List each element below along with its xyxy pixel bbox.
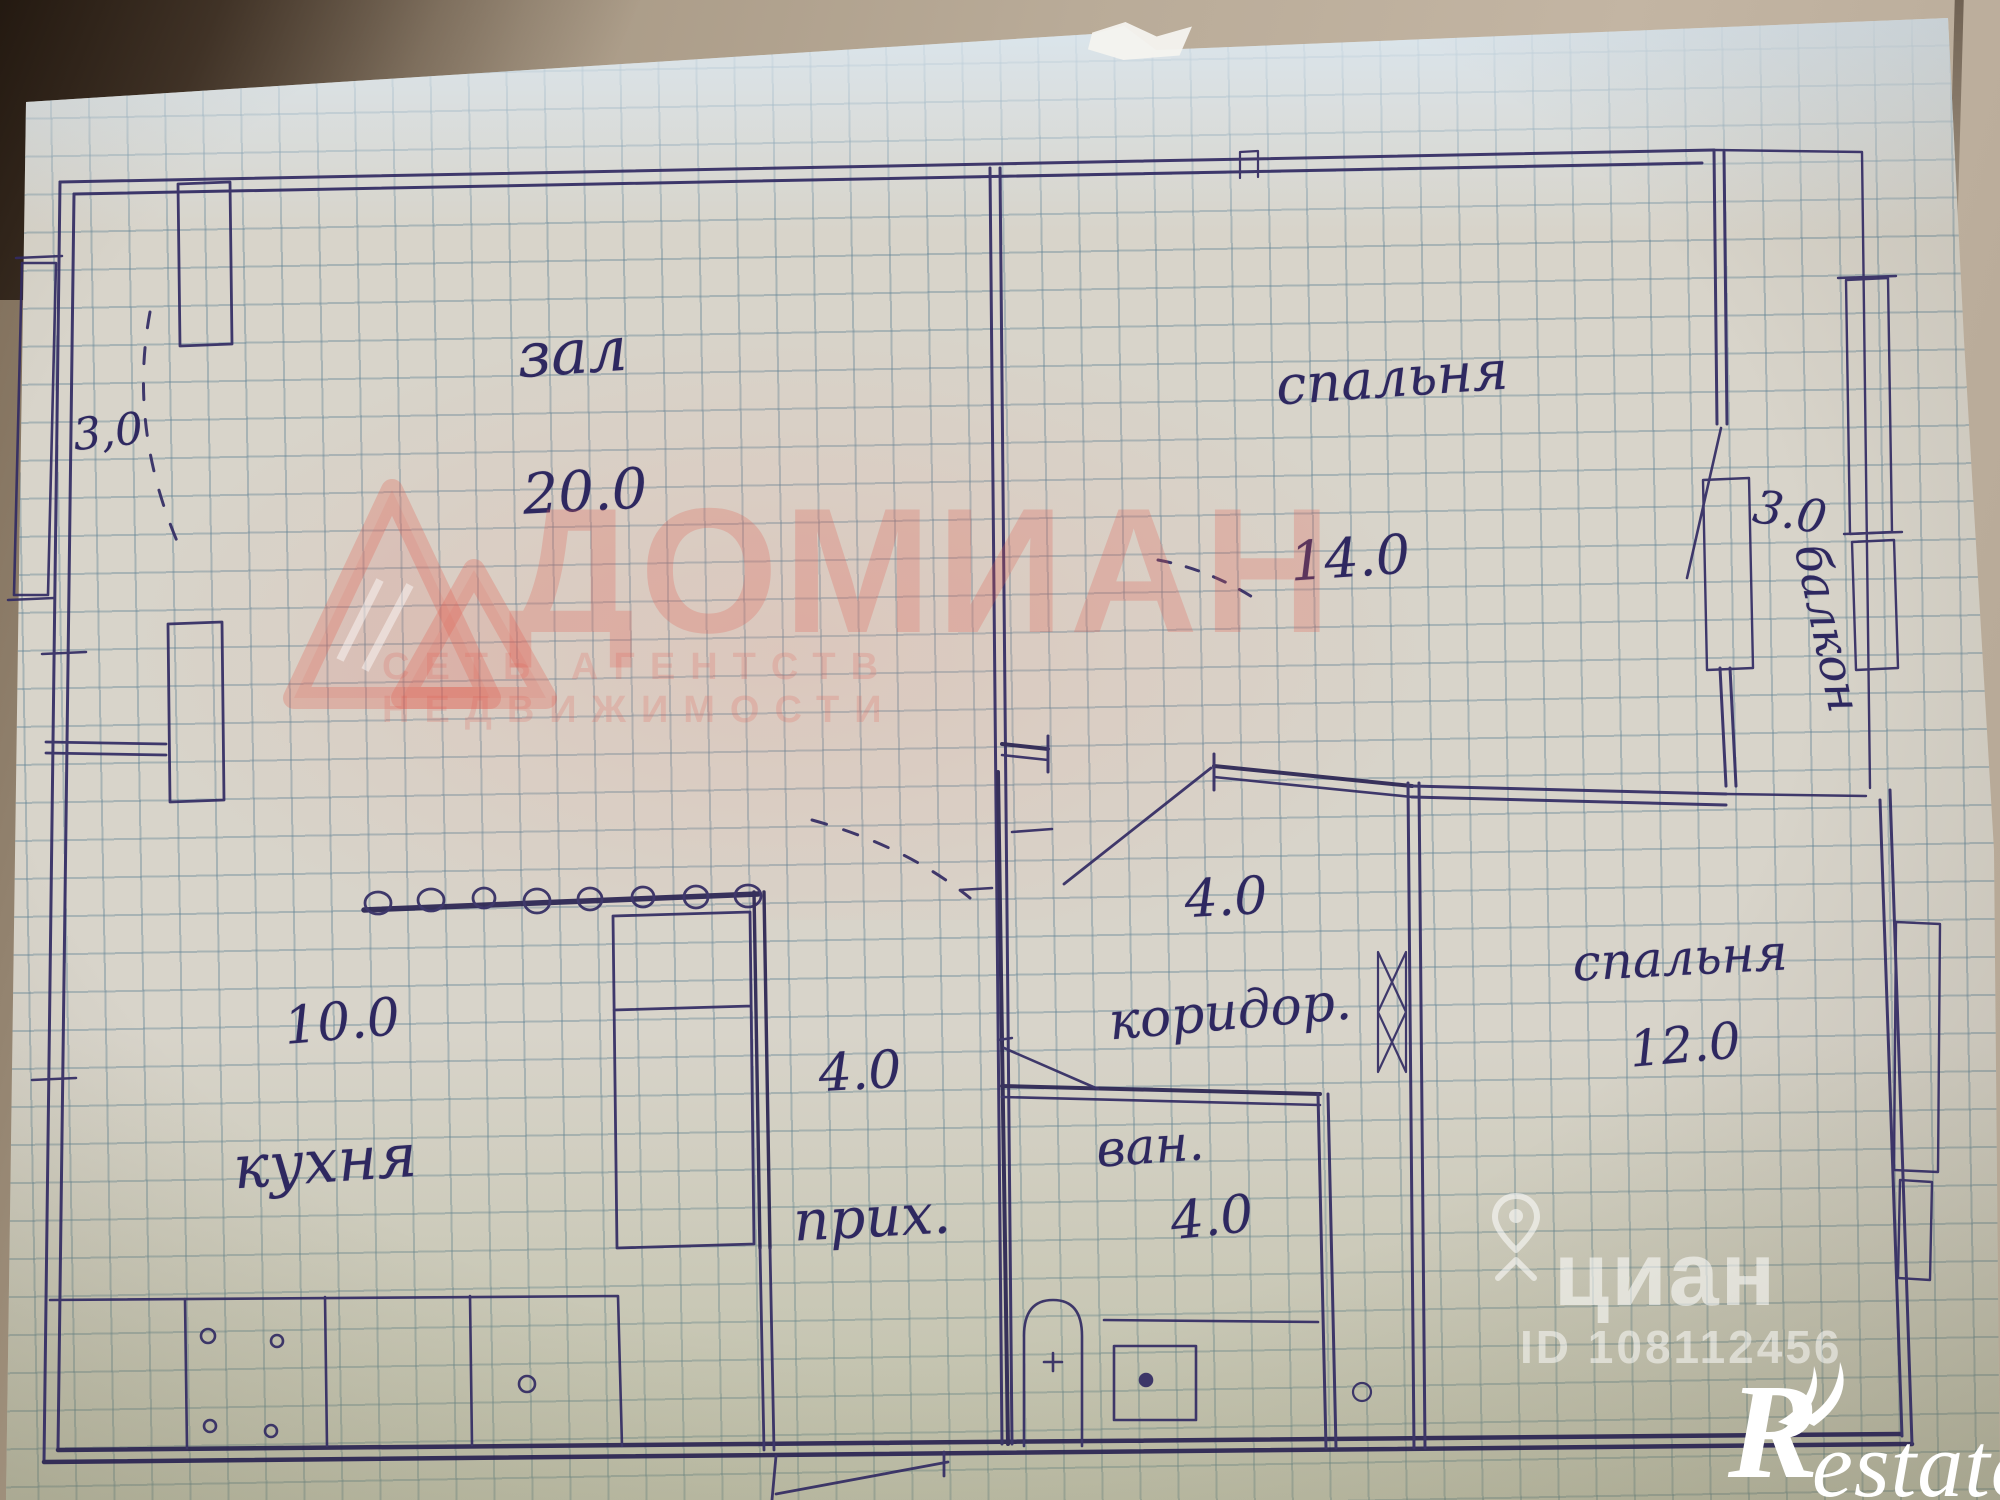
balcony-outer-wall (1714, 150, 1902, 788)
top-wall-tick (1240, 151, 1258, 178)
sink (1114, 1346, 1196, 1420)
bathroom-door-leaf (1004, 1048, 1098, 1089)
closet (613, 912, 754, 1248)
bathroom-fixtures (1024, 1300, 1318, 1446)
door-swing-arcs (143, 312, 1260, 898)
corridor-door-leaf (1064, 768, 1211, 884)
label-entry-name: прих. (792, 1181, 953, 1254)
wall-bedroom2-left (1353, 783, 1425, 1448)
label-bedroom-bottom-name: спальня (1571, 923, 1789, 992)
floorplan-photo: зал 20.0 спальня 14.0 3.0 балкон 3,0 10.… (0, 0, 2000, 1500)
label-kitchen-area: 10.0 (282, 987, 403, 1057)
outer-walls (44, 150, 1912, 1462)
label-corridor-area: 4.0 (1183, 866, 1269, 930)
label-entry-area: 4.0 (817, 1040, 903, 1104)
label-hall-area: 20.0 (521, 456, 649, 527)
wall-bedroom2-top (1412, 786, 1866, 805)
floorplan-drawing (0, 0, 2000, 1500)
door-knob-circle (1353, 1383, 1371, 1401)
entrance-door (772, 1452, 948, 1500)
walls-bathroom (998, 1038, 1336, 1448)
label-bedroom-top-area: 14.0 (1288, 522, 1412, 593)
label-bedroom-bottom-area: 12.0 (1627, 1011, 1743, 1078)
wall-central (990, 168, 1012, 1444)
toilet (1024, 1300, 1082, 1446)
kitchen-counter (50, 1296, 622, 1448)
wall-bedroom2-right (1880, 790, 1940, 1444)
label-bathroom-name: ван. (1094, 1113, 1206, 1178)
bedroom2-door-symbol (1378, 952, 1406, 1072)
label-balcony-left-area: 3,0 (71, 403, 146, 461)
left-balcony (8, 256, 86, 1080)
label-bathroom-area: 4.0 (1168, 1184, 1257, 1252)
label-hall-name: зал (514, 312, 629, 393)
wall-corridor (960, 736, 1412, 890)
label-kitchen-name: кухня (231, 1121, 419, 1204)
walls-kitchen-hall (46, 182, 774, 1450)
wall-bedroom-balcony (1687, 150, 1753, 786)
